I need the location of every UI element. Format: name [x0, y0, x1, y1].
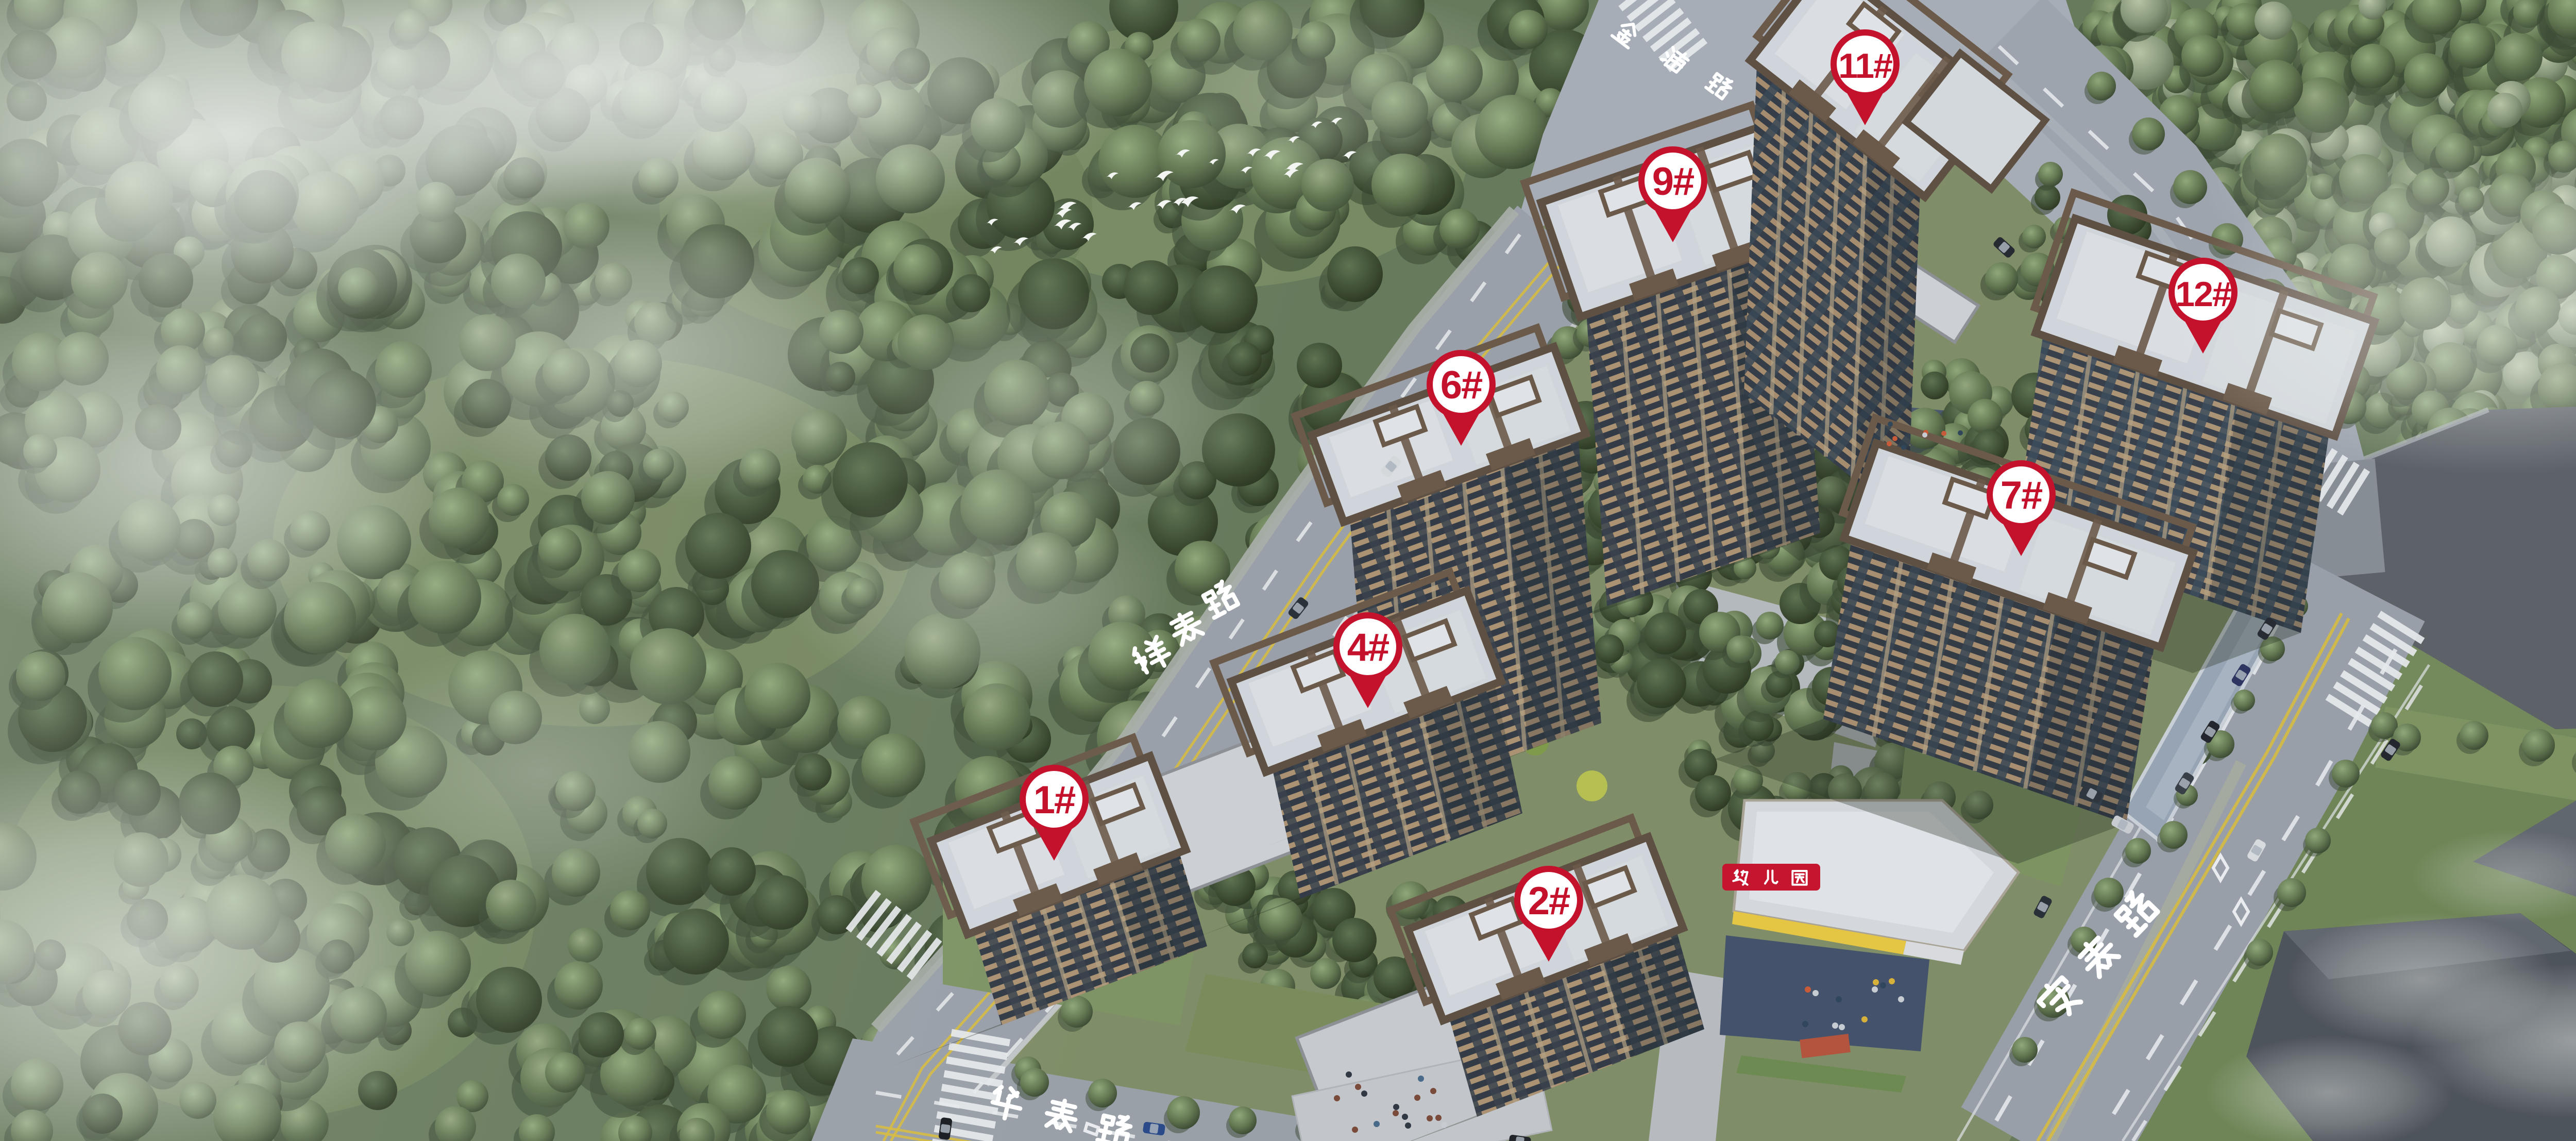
svg-text:6#: 6#	[1440, 363, 1483, 407]
svg-text:11#: 11#	[1838, 46, 1892, 86]
svg-text:4#: 4#	[1347, 626, 1389, 669]
svg-text:1#: 1#	[1033, 778, 1076, 822]
svg-text:12#: 12#	[2175, 275, 2231, 314]
svg-text:2#: 2#	[1528, 879, 1570, 923]
svg-text:7#: 7#	[2001, 474, 2043, 517]
svg-text:9#: 9#	[1652, 160, 1694, 204]
